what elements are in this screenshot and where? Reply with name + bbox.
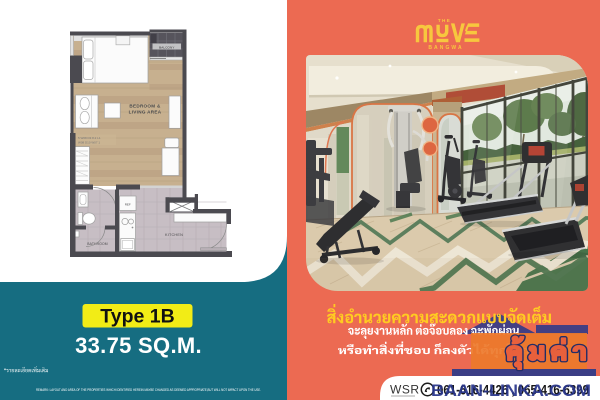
svg-text:5 W08 D3 8.2 L1: 5 W08 D3 8.2 L1 — [78, 136, 101, 140]
svg-text:BANGWA: BANGWA — [428, 45, 463, 51]
svg-text:33.75 SQ.M.: 33.75 SQ.M. — [75, 333, 202, 358]
svg-text:W08 D10 W07 1: W08 D10 W07 1 — [78, 141, 100, 145]
svg-text:KITCHEN: KITCHEN — [165, 233, 183, 237]
svg-text:Type 1B: Type 1B — [100, 306, 174, 328]
svg-text:THE: THE — [438, 18, 451, 23]
svg-text:BALCONY: BALCONY — [159, 45, 174, 49]
svg-text:WSR: WSR — [390, 383, 420, 397]
svg-text:BAAN-LINKA.COM: BAAN-LINKA.COM — [431, 381, 591, 400]
svg-text:REF: REF — [125, 202, 131, 206]
svg-text:REMARK: LAYOUT AND AREA OF THE: REMARK: LAYOUT AND AREA OF THE PROPERTIE… — [36, 388, 261, 392]
svg-text:BEDROOM &: BEDROOM & — [129, 104, 161, 109]
svg-text:LIVING AREA: LIVING AREA — [129, 110, 162, 115]
